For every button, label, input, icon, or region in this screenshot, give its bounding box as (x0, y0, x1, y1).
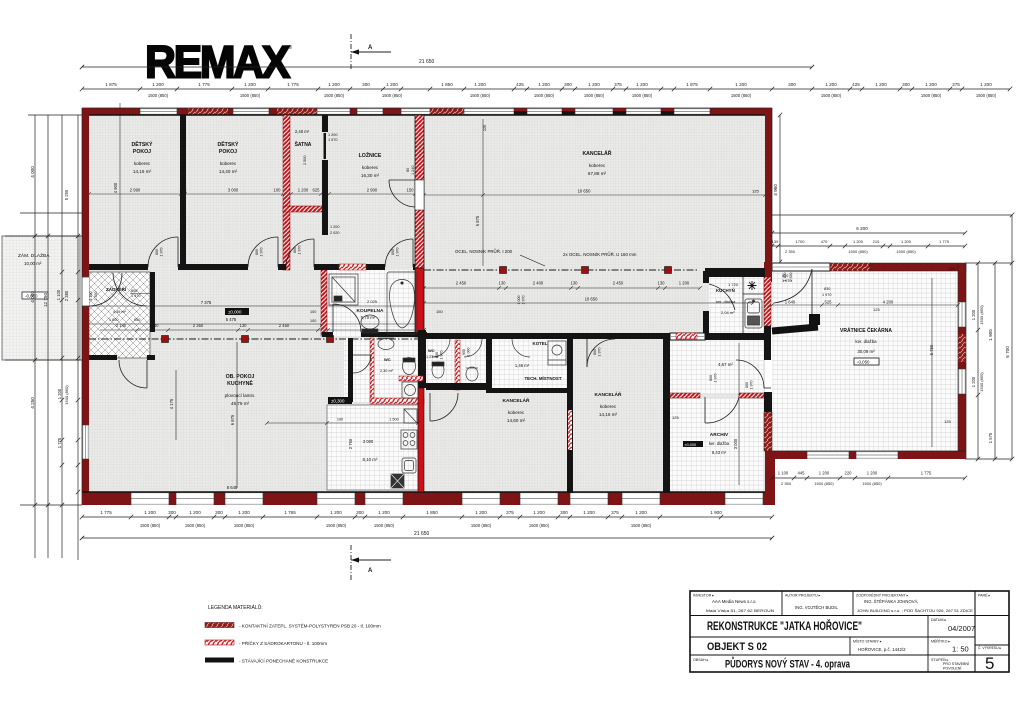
svg-text:125: 125 (948, 266, 955, 271)
svg-text:A: A (368, 45, 373, 51)
svg-text:1 575: 1 575 (988, 432, 993, 443)
svg-text:1 200: 1 200 (825, 82, 837, 87)
svg-text:ker. dlažba: ker. dlažba (709, 441, 730, 446)
svg-text:±0,000: ±0,000 (228, 310, 242, 315)
svg-text:LOŽNICE: LOŽNICE (359, 151, 382, 159)
svg-text:OBSAH ▸: OBSAH ▸ (693, 658, 709, 662)
svg-text:5 750: 5 750 (929, 344, 934, 355)
svg-text:2 450: 2 450 (613, 281, 624, 286)
svg-text:2,30 m²: 2,30 m² (380, 369, 394, 373)
svg-text:100: 100 (310, 310, 316, 314)
svg-text:1 970: 1 970 (440, 351, 444, 360)
svg-text:AUTOR PROJEKTU ▸: AUTOR PROJEKTU ▸ (785, 594, 821, 598)
svg-text:300: 300 (362, 82, 370, 87)
svg-text:1 800: 1 800 (109, 318, 119, 322)
svg-text:125: 125 (873, 307, 880, 312)
svg-text:1 970: 1 970 (522, 296, 526, 305)
svg-text:130: 130 (499, 281, 507, 286)
svg-text:300: 300 (902, 82, 910, 87)
svg-text:OCEL. NOSNÍK PRŮŘ. I 200: OCEL. NOSNÍK PRŮŘ. I 200 (455, 249, 513, 254)
svg-text:PRO STAVEBNÍ: PRO STAVEBNÍ (943, 662, 969, 666)
svg-text:3 000: 3 000 (733, 438, 738, 449)
svg-text:1 970: 1 970 (260, 248, 264, 257)
svg-text:DATUM ▸: DATUM ▸ (931, 618, 947, 622)
svg-text:1 850: 1 850 (441, 82, 453, 87)
svg-text:1500 (850): 1500 (850) (821, 93, 842, 98)
svg-text:2 020: 2 020 (330, 231, 340, 235)
svg-text:1 765: 1 765 (284, 510, 296, 515)
svg-text:3 000: 3 000 (363, 439, 374, 444)
svg-text:425: 425 (852, 82, 860, 87)
svg-text:1 200: 1 200 (238, 510, 250, 515)
svg-text:1500 (850): 1500 (850) (632, 93, 653, 98)
svg-text:2 450: 2 450 (456, 281, 467, 286)
svg-text:®: ® (288, 44, 292, 51)
svg-text:1 775: 1 775 (939, 239, 950, 244)
svg-text:6 875: 6 875 (230, 414, 235, 425)
svg-text:TECH. MÍSTNOST: TECH. MÍSTNOST (524, 376, 561, 381)
svg-text:1500 (850): 1500 (850) (534, 93, 555, 98)
svg-text:1 200: 1 200 (57, 388, 62, 399)
svg-text:1500 (850): 1500 (850) (979, 305, 984, 325)
svg-text:1 200: 1 200 (867, 471, 878, 476)
svg-text:1 200: 1 200 (735, 82, 747, 87)
svg-text:1 200: 1 200 (901, 239, 912, 244)
svg-text:KUCHYŇ: KUCHYŇ (716, 288, 735, 293)
svg-text:1 200: 1 200 (328, 82, 340, 87)
svg-text:900: 900 (462, 349, 466, 355)
svg-text:1 200: 1 200 (533, 510, 545, 515)
svg-text:1 200: 1 200 (980, 82, 992, 87)
svg-text:6 700: 6 700 (1005, 346, 1010, 358)
svg-text:DĚTSKÝ: DĚTSKÝ (217, 140, 239, 148)
svg-text:2,46 m²: 2,46 m² (295, 129, 310, 134)
svg-text:10,00 m²: 10,00 m² (24, 261, 42, 266)
svg-text:04/2007: 04/2007 (948, 624, 975, 633)
svg-text:2 350: 2 350 (789, 273, 793, 282)
svg-text:14,40 m²: 14,40 m² (219, 169, 238, 174)
svg-text:2 025: 2 025 (367, 299, 378, 304)
svg-text:125: 125 (944, 419, 951, 424)
svg-text:950: 950 (134, 318, 140, 322)
svg-text:8,10 m²: 8,10 m² (363, 457, 378, 462)
svg-text:1 970: 1 970 (160, 248, 164, 257)
svg-text:2 500: 2 500 (303, 155, 307, 165)
svg-text:1 200: 1 200 (819, 471, 830, 476)
svg-text:300: 300 (560, 510, 568, 515)
svg-text:KOTEL: KOTEL (533, 341, 548, 346)
svg-text:4,67 m²: 4,67 m² (718, 362, 733, 367)
svg-text:- STÁVAJÍCÍ PONECHANÉ KONSTRUK: - STÁVAJÍCÍ PONECHANÉ KONSTRUKCE (239, 658, 328, 664)
svg-text:21 650: 21 650 (414, 531, 430, 537)
svg-text:2 350: 2 350 (94, 292, 98, 301)
svg-text:1 875: 1 875 (105, 82, 117, 87)
svg-text:1 850: 1 850 (426, 510, 438, 515)
svg-text:1 200: 1 200 (971, 376, 976, 387)
svg-text:8 645: 8 645 (227, 485, 238, 490)
svg-text:1500 (850): 1500 (850) (731, 93, 752, 98)
svg-text:800: 800 (293, 247, 297, 253)
svg-text:12 750: 12 750 (43, 293, 48, 307)
svg-text:600: 600 (435, 352, 439, 358)
svg-text:1 900: 1 900 (710, 510, 722, 515)
svg-text:800: 800 (255, 249, 259, 255)
svg-text:1500 (850): 1500 (850) (471, 523, 492, 528)
svg-text:1 970: 1 970 (750, 381, 754, 390)
svg-text:1500 (850): 1500 (850) (326, 523, 347, 528)
svg-text:1 000: 1 000 (517, 296, 521, 305)
svg-text:1 905: 1 905 (988, 329, 993, 341)
svg-text:REKONSTRUKCE "JATKA HOŘOVICE": REKONSTRUKCE "JATKA HOŘOVICE" (707, 618, 862, 633)
svg-text:1500 (850): 1500 (850) (324, 93, 345, 98)
svg-text:5 255: 5 255 (64, 189, 69, 200)
svg-text:1 200: 1 200 (538, 82, 550, 87)
svg-text:14,16 m²: 14,16 m² (133, 169, 152, 174)
svg-text:1500 (850): 1500 (850) (631, 523, 652, 528)
svg-text:koberec: koberec (362, 165, 379, 170)
svg-text:10 650: 10 650 (585, 297, 598, 302)
svg-text:- PŘÍČKY Z SÁDROKARTONU - tl.: - PŘÍČKY Z SÁDROKARTONU - tl. 100mm (239, 639, 327, 646)
svg-text:14,60 m²: 14,60 m² (507, 418, 526, 423)
svg-text:830: 830 (824, 287, 830, 291)
svg-text:A: A (368, 568, 373, 574)
svg-text:koberec: koberec (600, 404, 617, 409)
svg-text:1 200: 1 200 (330, 225, 340, 229)
svg-text:1,46 m²: 1,46 m² (515, 363, 530, 368)
svg-text:1 240: 1 240 (411, 165, 415, 175)
svg-text:1700: 1700 (796, 239, 806, 244)
svg-text:INVESTOR ▸: INVESTOR ▸ (693, 594, 714, 598)
svg-text:48,79 m²: 48,79 m² (231, 401, 250, 406)
svg-text:300: 300 (564, 82, 572, 87)
svg-text:4 960: 4 960 (773, 184, 778, 196)
svg-text:1 775: 1 775 (287, 82, 299, 87)
svg-text:1 200: 1 200 (971, 309, 976, 320)
svg-text:1 100: 1 100 (56, 289, 61, 300)
svg-text:16,30 m²: 16,30 m² (361, 173, 380, 178)
svg-text:1500 (850): 1500 (850) (529, 523, 550, 528)
svg-text:1 775: 1 775 (198, 82, 210, 87)
svg-text:ING. ŠTĚPÁNKA JOHNOVÁ,: ING. ŠTĚPÁNKA JOHNOVÁ, (864, 599, 918, 604)
svg-text:DĚTSKÝ: DĚTSKÝ (131, 140, 153, 148)
svg-text:1 200: 1 200 (635, 510, 647, 515)
svg-text:625: 625 (313, 188, 321, 193)
svg-text:OBJEKT S 02: OBJEKT S 02 (707, 641, 767, 653)
svg-text:375: 375 (614, 82, 622, 87)
svg-text:ker. dlažba: ker. dlažba (716, 299, 736, 304)
svg-text:1 970: 1 970 (714, 374, 718, 383)
svg-text:1500 (850): 1500 (850) (976, 93, 997, 98)
svg-text:6 200: 6 200 (856, 226, 868, 231)
svg-text:1 200: 1 200 (583, 510, 595, 515)
svg-text:POKOJ: POKOJ (133, 149, 151, 155)
svg-text:67,88 m²: 67,88 m² (588, 171, 607, 176)
svg-text:1 200: 1 200 (474, 82, 486, 87)
svg-text:1: 50: 1: 50 (952, 645, 969, 654)
svg-text:130: 130 (571, 281, 579, 286)
svg-text:1 200: 1 200 (189, 510, 201, 515)
svg-text:215: 215 (873, 239, 880, 244)
svg-text:1 970: 1 970 (396, 248, 400, 257)
svg-text:7 375: 7 375 (201, 300, 212, 305)
svg-text:800: 800 (745, 382, 749, 388)
svg-text:1 970: 1 970 (822, 293, 832, 297)
svg-text:4 200: 4 200 (883, 300, 894, 305)
svg-text:WC: WC (384, 357, 391, 362)
svg-text:470: 470 (821, 239, 828, 244)
svg-text:125: 125 (672, 415, 679, 420)
svg-text:4 250: 4 250 (30, 397, 35, 409)
svg-text:koberec: koberec (508, 410, 525, 415)
svg-text:4 900: 4 900 (113, 182, 118, 193)
svg-text:KANCELÁŘ: KANCELÁŘ (582, 149, 611, 157)
svg-text:LEGENDA MATERIÁLŮ:: LEGENDA MATERIÁLŮ: (208, 604, 263, 611)
svg-text:375: 375 (506, 510, 514, 515)
svg-text:2,04 m²: 2,04 m² (721, 310, 735, 315)
svg-text:±0,300: ±0,300 (331, 399, 345, 404)
svg-text:1500 (850): 1500 (850) (979, 372, 984, 392)
svg-text:1 200: 1 200 (144, 510, 156, 515)
svg-text:MĚŘÍTKO ▸: MĚŘÍTKO ▸ (931, 639, 950, 644)
svg-text:1500 (850): 1500 (850) (148, 93, 169, 98)
svg-text:21 650: 21 650 (419, 59, 435, 65)
svg-text:1500 (850): 1500 (850) (848, 249, 868, 254)
svg-text:Malá Víska 51, 267 62 BEROUN: Malá Víska 51, 267 62 BEROUN (706, 608, 774, 613)
svg-text:1 720: 1 720 (728, 282, 739, 287)
svg-text:KOUPELNA: KOUPELNA (357, 308, 384, 314)
svg-text:30,09 m²: 30,09 m² (857, 349, 875, 354)
svg-text:130: 130 (658, 281, 666, 286)
svg-text:±0,000: ±0,000 (685, 443, 697, 447)
svg-text:1 200: 1 200 (244, 82, 256, 87)
svg-text:800: 800 (155, 249, 159, 255)
svg-text:4 175: 4 175 (169, 398, 174, 409)
svg-text:2 400: 2 400 (533, 281, 544, 286)
svg-text:800: 800 (131, 289, 137, 293)
svg-text:1500 (850): 1500 (850) (185, 523, 206, 528)
svg-text:1 100: 1 100 (89, 292, 93, 301)
svg-text:5: 5 (985, 654, 994, 673)
svg-text:5 475: 5 475 (226, 317, 237, 322)
svg-text:2 990: 2 990 (130, 188, 141, 193)
svg-text:koberec: koberec (589, 163, 606, 168)
svg-text:300: 300 (788, 82, 796, 87)
svg-text:1 200: 1 200 (679, 281, 690, 286)
svg-text:WC: WC (428, 348, 435, 353)
svg-text:1 100: 1 100 (783, 273, 787, 282)
svg-text:2 750: 2 750 (348, 438, 353, 449)
svg-text:800: 800 (709, 375, 713, 381)
svg-text:1500 (850): 1500 (850) (896, 249, 916, 254)
svg-text:1 200: 1 200 (330, 510, 342, 515)
svg-text:1 200: 1 200 (636, 82, 648, 87)
svg-text:POVOLENÍ: POVOLENÍ (943, 667, 961, 671)
svg-text:10 650: 10 650 (578, 189, 591, 194)
svg-text:375: 375 (611, 510, 619, 515)
svg-text:KUCHYNĚ: KUCHYNĚ (227, 379, 253, 387)
svg-text:525: 525 (825, 300, 833, 305)
svg-text:4 000: 4 000 (30, 291, 35, 303)
svg-text:2 350: 2 350 (781, 481, 792, 486)
svg-text:150: 150 (407, 188, 415, 193)
svg-text:3 000: 3 000 (228, 188, 239, 193)
svg-text:HOŘOVICE, p.č. 1442/2: HOŘOVICE, p.č. 1442/2 (858, 647, 906, 652)
svg-text:koberec: koberec (220, 161, 237, 166)
svg-text:1500 (850): 1500 (850) (584, 93, 605, 98)
svg-text:4,49 m²: 4,49 m² (113, 310, 127, 314)
svg-text:PŮDORYS NOVÝ STAV - 4. oprava: PŮDORYS NOVÝ STAV - 4. oprava (725, 657, 851, 671)
svg-text:-0,050: -0,050 (857, 360, 870, 365)
svg-text:1 970: 1 970 (298, 246, 302, 255)
svg-text:1500 (850): 1500 (850) (921, 93, 942, 98)
svg-text:1 200: 1 200 (925, 82, 937, 87)
svg-text:800: 800 (391, 249, 395, 255)
svg-text:JOHN BUILDING s.r.o. ; POD ŠA: JOHN BUILDING s.r.o. ; POD ŠACHTOU 926, … (857, 608, 974, 613)
svg-text:6 875: 6 875 (475, 215, 480, 226)
svg-text:225: 225 (483, 125, 487, 131)
svg-text:300: 300 (168, 510, 176, 515)
svg-text:1500 (850): 1500 (850) (374, 523, 395, 528)
svg-text:1500 (850): 1500 (850) (64, 385, 69, 405)
svg-text:1500 (850): 1500 (850) (470, 93, 491, 98)
svg-text:ker. dlažba: ker. dlažba (855, 339, 877, 344)
svg-text:2x OCEL. NOSNÍK PRŮŘ. U 160 mm: 2x OCEL. NOSNÍK PRŮŘ. U 160 mm (563, 252, 637, 257)
svg-text:1 200: 1 200 (875, 82, 887, 87)
svg-text:plovoucí lamin.: plovoucí lamin. (225, 393, 256, 398)
svg-text:1 970: 1 970 (131, 294, 141, 298)
svg-text:- KONTAKTNÍ ZATEPL. SYSTÉM-POL: - KONTAKTNÍ ZATEPL. SYSTÉM-POLYSTYREN PS… (239, 623, 381, 629)
svg-text:REMAX: REMAX (145, 37, 290, 88)
svg-text:1 200: 1 200 (328, 133, 338, 137)
svg-text:VRÁTNICE ČEKÁRNA: VRÁTNICE ČEKÁRNA (840, 327, 892, 334)
svg-text:1500 (850): 1500 (850) (814, 481, 834, 486)
svg-text:ARCHIV: ARCHIV (710, 432, 729, 438)
svg-text:Č. VÝKRESU ▸: Č. VÝKRESU ▸ (978, 645, 1001, 650)
svg-text:125: 125 (752, 189, 759, 194)
svg-text:100: 100 (337, 418, 343, 422)
svg-text:1 970: 1 970 (328, 138, 338, 142)
svg-text:1 200: 1 200 (588, 82, 600, 87)
svg-text:1 875: 1 875 (686, 82, 698, 87)
svg-text:1 000: 1 000 (467, 348, 471, 357)
svg-text:2 900: 2 900 (367, 188, 378, 193)
svg-text:ZODPOVĚDNÝ PROJEKTANT ▸: ZODPOVĚDNÝ PROJEKTANT ▸ (856, 593, 909, 598)
svg-text:220: 220 (845, 471, 853, 476)
svg-text:1 500: 1 500 (389, 418, 399, 422)
svg-text:OB. POKOJ: OB. POKOJ (226, 374, 255, 380)
svg-text:1 775: 1 775 (921, 471, 932, 476)
svg-text:1500 (850): 1500 (850) (140, 523, 161, 528)
svg-text:375: 375 (952, 82, 960, 87)
svg-text:1500 (850): 1500 (850) (234, 523, 255, 528)
svg-text:1 200: 1 200 (475, 510, 487, 515)
svg-text:POKOJ: POKOJ (219, 149, 237, 155)
svg-text:AAA Media News s.r.o.: AAA Media News s.r.o. (712, 599, 757, 604)
svg-text:300: 300 (356, 510, 364, 515)
svg-text:1 200: 1 200 (853, 239, 864, 244)
svg-text:1 100: 1 100 (778, 471, 789, 476)
svg-text:1 775: 1 775 (100, 510, 112, 515)
svg-text:14,16 m²: 14,16 m² (599, 412, 618, 417)
svg-text:1 970: 1 970 (598, 348, 602, 357)
svg-text:1500 (850): 1500 (850) (862, 481, 882, 486)
svg-text:425: 425 (516, 82, 524, 87)
svg-text:139: 139 (772, 239, 779, 244)
svg-text:60: 60 (406, 168, 410, 172)
svg-text:1500 (850): 1500 (850) (240, 93, 261, 98)
svg-text:1 200: 1 200 (298, 188, 309, 193)
svg-text:MÍSTO STAVBY ▸: MÍSTO STAVBY ▸ (853, 640, 882, 644)
svg-text:1 200: 1 200 (378, 510, 390, 515)
svg-text:4 000: 4 000 (30, 166, 35, 178)
svg-text:445: 445 (798, 471, 806, 476)
svg-text:1 200: 1 200 (152, 82, 164, 87)
svg-text:1 640: 1 640 (785, 300, 796, 305)
svg-text:100: 100 (310, 319, 316, 323)
svg-text:100: 100 (274, 188, 282, 193)
svg-text:ŠATNA: ŠATNA (295, 140, 312, 148)
svg-text:8,43 m²: 8,43 m² (712, 450, 727, 455)
svg-text:1500 (850): 1500 (850) (382, 93, 403, 98)
svg-text:800: 800 (593, 349, 597, 355)
svg-text:koberec: koberec (134, 161, 151, 166)
svg-text:300: 300 (215, 510, 223, 515)
svg-text:2 380: 2 380 (64, 290, 69, 301)
svg-text:1 200: 1 200 (386, 82, 398, 87)
svg-text:2 350: 2 350 (785, 249, 796, 254)
svg-text:ING. VOJTĚCH BUDIL: ING. VOJTĚCH BUDIL (795, 605, 838, 610)
svg-text:PARÉ ▸: PARÉ ▸ (978, 593, 991, 598)
svg-text:150: 150 (436, 309, 443, 314)
svg-text:1 775: 1 775 (57, 437, 62, 448)
